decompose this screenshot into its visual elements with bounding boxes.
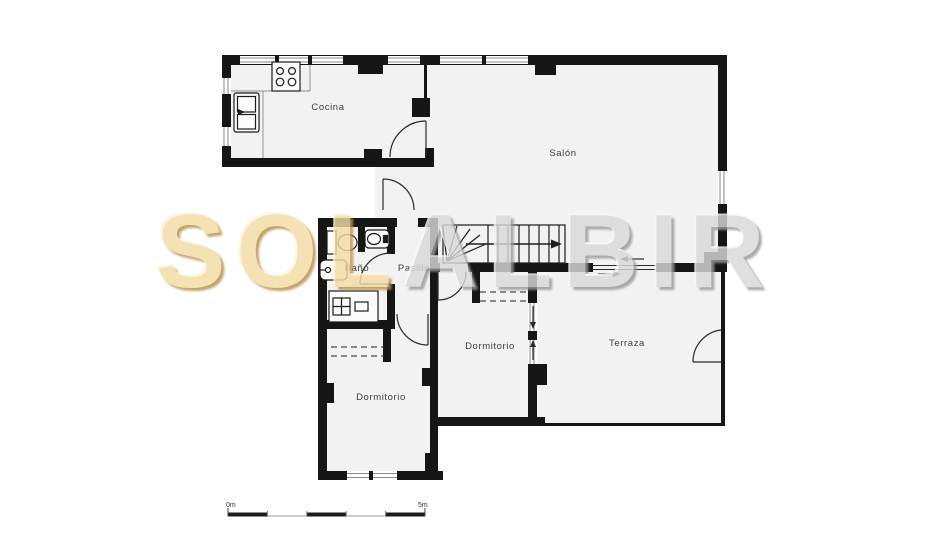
wall-segment <box>430 263 440 272</box>
sink-icon <box>365 230 389 248</box>
room-label-pasillo: Pasillo <box>398 263 430 274</box>
wall-segment <box>318 471 347 480</box>
wall-pillar <box>425 453 438 480</box>
wall-segment <box>383 329 391 362</box>
window <box>440 55 528 64</box>
wall-pillar <box>318 383 334 403</box>
scale-start-label: 0m <box>226 502 236 509</box>
window <box>718 171 727 204</box>
room-label-cocina: Cocina <box>311 102 344 113</box>
terraza-wall-thin <box>538 423 725 426</box>
wall-pillar <box>358 55 383 74</box>
room-label-dormitorio-right: Dormitorio <box>465 341 515 352</box>
wall-pillar <box>422 368 438 386</box>
window <box>222 127 231 146</box>
fridge-icon <box>234 93 259 132</box>
window <box>388 56 420 64</box>
room-label-terraza: Terraza <box>609 338 645 349</box>
dormitorio-left-floor <box>322 306 438 476</box>
room-label-bano: Baño <box>345 263 370 274</box>
wall-segment <box>472 272 480 303</box>
wall-segment <box>222 55 231 167</box>
room-label-salon: Salón <box>549 148 576 159</box>
terraza-wall-thin <box>721 272 725 426</box>
wall-segment <box>387 284 395 320</box>
window <box>347 471 397 480</box>
bidet-icon <box>320 260 347 280</box>
salon-floor <box>429 59 724 268</box>
wall-segment <box>528 263 537 303</box>
wall-segment <box>430 417 545 426</box>
wall-segment <box>430 218 438 263</box>
floorplan-drawing: Cocina Salón Baño Pasillo Dormitorio Ter… <box>0 0 950 535</box>
wall-segment <box>318 218 327 480</box>
room-label-dormitorio-left: Dormitorio <box>356 392 406 403</box>
vanity-icon <box>329 291 378 322</box>
scale-bar: 0m 5m <box>226 502 428 517</box>
wall-pillar <box>528 364 547 385</box>
window <box>222 78 231 94</box>
wall-pillar <box>364 149 382 158</box>
wall-segment <box>718 55 727 272</box>
stove-icon <box>272 62 300 91</box>
wall-segment <box>424 65 427 98</box>
wall-pillar <box>412 98 430 117</box>
scale-end-label: 5m <box>418 502 428 509</box>
wall-segment <box>418 218 430 227</box>
wall-segment <box>358 218 365 252</box>
wall-segment <box>528 331 537 340</box>
wall-segment <box>656 263 727 272</box>
wall-segment <box>318 218 397 227</box>
floorplan-canvas: Cocina Salón Baño Pasillo Dormitorio Ter… <box>0 0 950 535</box>
wall-pillar <box>535 55 556 75</box>
wall-segment <box>222 158 434 167</box>
